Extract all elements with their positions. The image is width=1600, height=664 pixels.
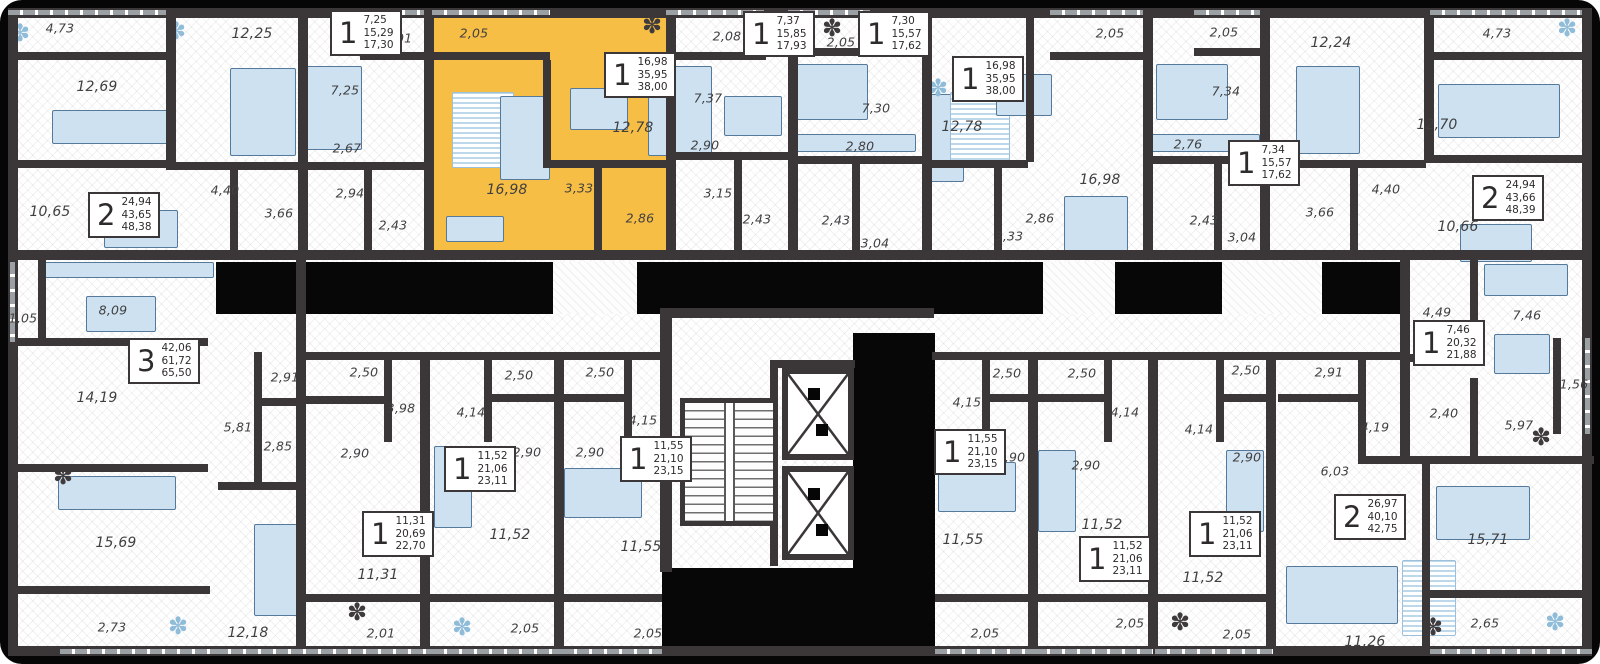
total-area: 48,39 — [1505, 204, 1535, 217]
living-area: 24,94 — [1505, 179, 1535, 192]
room-area-label: 2,43 — [1190, 213, 1219, 228]
room-area-label: 2,05 — [1096, 26, 1125, 41]
living-area: 16,98 — [985, 60, 1015, 73]
living-area: 11,52 — [1222, 515, 1252, 528]
room-area-label: 4,73 — [1483, 26, 1512, 41]
area-values: 7,46 20,32 21,88 — [1446, 324, 1476, 362]
room-area-label: 8,09 — [99, 303, 128, 318]
room-area-label: 7,46 — [1513, 308, 1542, 323]
room-count: 1 — [629, 445, 647, 474]
apartment-stat-card[interactable]: 1 11,52 21,06 23,11 — [1079, 536, 1151, 582]
total-area: 38,00 — [637, 81, 667, 94]
room-area-label: 15,69 — [95, 535, 136, 551]
living-area: 7,46 — [1446, 324, 1476, 337]
room-count: 1 — [1088, 545, 1106, 574]
room-count: 1 — [752, 20, 770, 49]
apartment-area: 15,57 — [891, 28, 921, 41]
apartment-stat-card[interactable]: 1 7,25 15,29 17,30 — [330, 10, 402, 56]
total-area: 23,11 — [1222, 540, 1252, 553]
stat-cards-layer: 2 24,94 43,65 48,38 1 7,25 15,29 17,30 1… — [0, 0, 1600, 664]
room-area-label: 2,65 — [1471, 616, 1500, 631]
room-area-label: 1,56 — [1560, 377, 1589, 392]
room-area-label: 12,70 — [1416, 117, 1457, 133]
room-count: 2 — [1343, 503, 1361, 532]
total-area: 17,30 — [363, 39, 393, 52]
room-area-label: 2,67 — [333, 141, 362, 156]
room-area-label: 7,30 — [862, 101, 891, 116]
apartment-area: 61,72 — [161, 355, 191, 368]
room-area-label: 2,05 — [634, 626, 663, 641]
room-area-label: 2,90 — [513, 445, 542, 460]
living-area: 11,52 — [477, 450, 507, 463]
room-area-label: 2,05 — [460, 26, 489, 41]
room-area-label: 2,43 — [379, 218, 408, 233]
room-area-label: 4,15 — [629, 413, 658, 428]
area-values: 7,25 15,29 17,30 — [363, 14, 393, 52]
room-area-label: 2,80 — [846, 139, 875, 154]
room-area-label: 2,50 — [1068, 366, 1097, 381]
area-values: 26,97 40,10 42,75 — [1367, 498, 1397, 536]
room-area-label: 11,52 — [1081, 517, 1122, 533]
area-values: 11,52 21,06 23,11 — [1222, 515, 1252, 553]
apartment-area: 15,29 — [363, 27, 393, 40]
apartment-stat-card[interactable]: 2 24,94 43,66 48,39 — [1472, 175, 1544, 221]
room-area-label: 2,73 — [98, 620, 127, 635]
room-area-label: 4,73 — [46, 21, 75, 36]
living-area: 11,55 — [653, 440, 683, 453]
room-count: 1 — [1422, 329, 1440, 358]
room-area-label: 2,05 — [971, 626, 1000, 641]
apartment-area: 43,66 — [1505, 192, 1535, 205]
area-values: 11,55 21,10 23,15 — [653, 440, 683, 478]
living-area: 7,37 — [776, 15, 806, 28]
floor-plan: ✽ ✽ ✽ ✽ ✽ ✽ ✽ ✽ ✽ ✽ ✽ ✽ ✽ ✽ — [0, 0, 1600, 664]
room-area-label: 14,19 — [76, 390, 117, 406]
room-area-label: 11,52 — [1182, 570, 1223, 586]
room-area-label: 2,91 — [1315, 365, 1344, 380]
apartment-area: 21,10 — [967, 446, 997, 459]
total-area: 17,62 — [891, 40, 921, 53]
room-area-label: 3,33 — [995, 229, 1024, 244]
total-area: 48,38 — [121, 221, 151, 234]
room-count: 1 — [943, 438, 961, 467]
room-area-label: 16,98 — [1079, 172, 1120, 188]
room-area-label: 2,76 — [1174, 137, 1203, 152]
apartment-stat-card[interactable]: 1 11,55 21,10 23,15 — [934, 429, 1006, 475]
room-area-label: 12,24 — [1310, 35, 1351, 51]
living-area: 11,55 — [967, 433, 997, 446]
room-area-label: 2,01 — [367, 626, 396, 641]
apartment-stat-card[interactable]: 1 7,30 15,57 17,62 — [858, 11, 930, 57]
room-area-label: 2,05 — [511, 621, 540, 636]
total-area: 17,62 — [1261, 169, 1291, 182]
apartment-stat-card[interactable]: 1 11,55 21,10 23,15 — [620, 436, 692, 482]
total-area: 23,11 — [477, 475, 507, 488]
room-area-label: 3,66 — [265, 206, 294, 221]
room-area-label: 2,08 — [713, 29, 742, 44]
living-area: 16,98 — [637, 56, 667, 69]
room-count: 1 — [613, 61, 631, 90]
apartment-area: 21,06 — [1112, 553, 1142, 566]
room-count: 1 — [1198, 520, 1216, 549]
living-area: 24,94 — [121, 196, 151, 209]
room-area-label: 2,50 — [993, 366, 1022, 381]
room-area-label: 12,78 — [941, 119, 982, 135]
room-count: 1 — [1237, 149, 1255, 178]
room-area-label: 11,31 — [357, 567, 398, 583]
apartment-area: 15,85 — [776, 28, 806, 41]
room-area-label: 4,14 — [1111, 405, 1140, 420]
area-values: 16,98 35,95 38,00 — [985, 60, 1015, 98]
room-area-label: 4,40 — [211, 183, 240, 198]
apartment-stat-card[interactable]: 2 26,97 40,10 42,75 — [1334, 494, 1406, 540]
room-area-label: 12,69 — [76, 79, 117, 95]
room-area-label: 2,90 — [576, 445, 605, 460]
room-area-label: 15,71 — [1467, 532, 1508, 548]
total-area: 23,15 — [967, 458, 997, 471]
area-values: 7,34 15,57 17,62 — [1261, 144, 1291, 182]
apartment-stat-card[interactable]: 1 7,34 15,57 17,62 — [1228, 140, 1300, 186]
apartment-stat-card[interactable]: 1 7,37 15,85 17,93 — [743, 11, 815, 57]
living-area: 7,34 — [1261, 144, 1291, 157]
total-area: 17,93 — [776, 40, 806, 53]
apartment-stat-card[interactable]: 1 16,98 35,95 38,00 — [952, 56, 1024, 102]
room-area-label: 11,55 — [620, 539, 661, 555]
room-area-label: 10,65 — [29, 204, 70, 220]
apartment-area: 43,65 — [121, 209, 151, 222]
room-area-label: 2,43 — [743, 212, 772, 227]
room-area-label: 3,15 — [704, 186, 733, 201]
room-count: 1 — [867, 20, 885, 49]
room-area-label: 2,91 — [271, 370, 300, 385]
room-area-label: 2,90 — [1233, 450, 1262, 465]
apartment-area: 35,95 — [637, 69, 667, 82]
apartment-stat-card[interactable]: 1 16,98 35,95 38,00 — [604, 52, 676, 98]
apartment-area: 21,10 — [653, 453, 683, 466]
room-area-label: 3,98 — [387, 401, 416, 416]
room-count: 1 — [453, 455, 471, 484]
room-area-label: 4,14 — [457, 405, 486, 420]
total-area: 21,88 — [1446, 349, 1476, 362]
room-area-label: 4,14 — [1185, 422, 1214, 437]
room-area-label: 4,49 — [1423, 305, 1452, 320]
area-values: 11,52 21,06 23,11 — [477, 450, 507, 488]
area-values: 42,06 61,72 65,50 — [161, 342, 191, 380]
total-area: 22,70 — [395, 540, 425, 553]
room-area-label: 2,86 — [626, 211, 655, 226]
room-count: 2 — [1481, 184, 1499, 213]
room-area-label: 2,85 — [264, 439, 293, 454]
room-area-label: 3,33 — [565, 181, 594, 196]
room-area-label: 11,26 — [1344, 634, 1385, 650]
total-area: 65,50 — [161, 367, 191, 380]
room-area-label: 2,50 — [1232, 363, 1261, 378]
area-values: 7,37 15,85 17,93 — [776, 15, 806, 53]
room-area-label: 7,25 — [331, 83, 360, 98]
apartment-area: 35,95 — [985, 73, 1015, 86]
room-area-label: 7,34 — [1212, 84, 1241, 99]
area-values: 11,55 21,10 23,15 — [967, 433, 997, 471]
room-area-label: 2,05 — [1116, 616, 1145, 631]
room-area-label: 12,78 — [612, 120, 653, 136]
living-area: 11,52 — [1112, 540, 1142, 553]
room-area-label: 3,04 — [861, 236, 890, 251]
room-count: 1 — [371, 520, 389, 549]
room-area-label: 16,98 — [486, 182, 527, 198]
room-area-label: 12,25 — [231, 26, 272, 42]
apartment-stat-card[interactable]: 2 24,94 43,65 48,38 — [88, 192, 160, 238]
area-values: 24,94 43,66 48,39 — [1505, 179, 1535, 217]
room-area-label: 7,37 — [694, 91, 723, 106]
room-area-label: 3,66 — [1306, 205, 1335, 220]
room-area-label: 10,66 — [1437, 219, 1478, 235]
room-area-label: 4,19 — [1361, 420, 1390, 435]
apartment-stat-card[interactable]: 1 7,46 20,32 21,88 — [1413, 320, 1485, 366]
living-area: 7,30 — [891, 15, 921, 28]
room-area-label: 2,05 — [1223, 627, 1252, 642]
living-area: 11,31 — [395, 515, 425, 528]
room-count: 3 — [137, 347, 155, 376]
room-area-label: 2,50 — [586, 365, 615, 380]
apartment-stat-card[interactable]: 3 42,06 61,72 65,50 — [128, 338, 200, 384]
apartment-area: 21,06 — [477, 463, 507, 476]
room-area-label: 4,15 — [953, 395, 982, 410]
room-area-label: 5,97 — [1505, 418, 1534, 433]
apartment-stat-card[interactable]: 1 11,52 21,06 23,11 — [444, 446, 516, 492]
room-area-label: 1,05 — [9, 311, 38, 326]
room-count: 2 — [97, 201, 115, 230]
room-area-label: 11,52 — [489, 527, 530, 543]
room-area-label: 2,50 — [350, 365, 379, 380]
room-area-label: 5,81 — [224, 420, 253, 435]
total-area: 38,00 — [985, 85, 1015, 98]
area-values: 11,52 21,06 23,11 — [1112, 540, 1142, 578]
apartment-stat-card[interactable]: 1 11,31 20,69 22,70 — [362, 511, 434, 557]
total-area: 23,15 — [653, 465, 683, 478]
apartment-area: 21,06 — [1222, 528, 1252, 541]
room-area-label: 2,90 — [341, 446, 370, 461]
room-count: 1 — [961, 65, 979, 94]
area-values: 11,31 20,69 22,70 — [395, 515, 425, 553]
total-area: 23,11 — [1112, 565, 1142, 578]
room-area-label: 2,40 — [1430, 406, 1459, 421]
room-area-label: 2,50 — [505, 368, 534, 383]
apartment-stat-card[interactable]: 1 11,52 21,06 23,11 — [1189, 511, 1261, 557]
apartment-area: 15,57 — [1261, 157, 1291, 170]
room-area-label: 2,94 — [336, 186, 365, 201]
room-area-label: 6,03 — [1321, 464, 1350, 479]
room-area-label: 2,90 — [1072, 458, 1101, 473]
room-area-label: 12,18 — [227, 625, 268, 641]
total-area: 42,75 — [1367, 523, 1397, 536]
room-area-label: 11,55 — [942, 532, 983, 548]
apartment-area: 20,69 — [395, 528, 425, 541]
room-area-label: 2,05 — [1210, 25, 1239, 40]
living-area: 42,06 — [161, 342, 191, 355]
room-area-label: 4,40 — [1372, 182, 1401, 197]
room-count: 1 — [339, 19, 357, 48]
area-values: 24,94 43,65 48,38 — [121, 196, 151, 234]
living-area: 26,97 — [1367, 498, 1397, 511]
room-area-label: 2,43 — [822, 213, 851, 228]
apartment-area: 20,32 — [1446, 337, 1476, 350]
apartment-area: 40,10 — [1367, 511, 1397, 524]
room-area-label: 2,86 — [1026, 211, 1055, 226]
room-area-label: 2,90 — [691, 138, 720, 153]
room-area-label: 2,05 — [827, 35, 856, 50]
area-values: 7,30 15,57 17,62 — [891, 15, 921, 53]
room-area-label: 3,04 — [1228, 230, 1257, 245]
area-values: 16,98 35,95 38,00 — [637, 56, 667, 94]
living-area: 7,25 — [363, 14, 393, 27]
